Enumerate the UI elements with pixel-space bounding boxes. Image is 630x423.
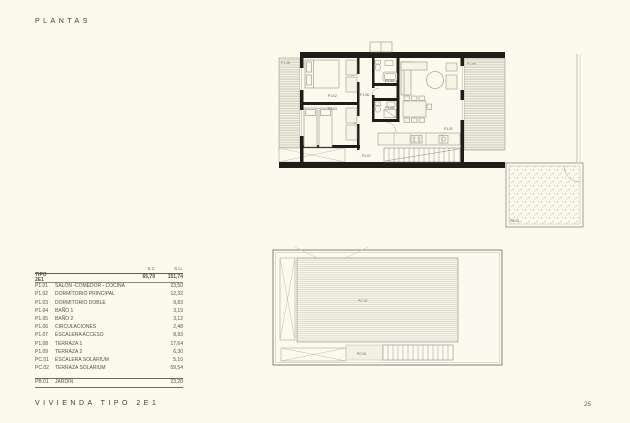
label-bano2: P1.05	[385, 106, 394, 110]
access-stair	[384, 148, 460, 162]
row-su: 59,54	[155, 366, 183, 371]
row-su: 23,50	[155, 284, 183, 289]
round-table	[427, 72, 444, 89]
row-label: JARDÍN	[55, 380, 129, 385]
row-su: 2,48	[155, 325, 183, 330]
row-code: P1.07	[35, 333, 55, 338]
row-label: DORMITORIO PRINCIPAL	[55, 292, 129, 297]
row-code: P1.01	[35, 284, 55, 289]
footer-title: VIVIENDA TIPO 2E1	[35, 400, 159, 407]
row-code: P1.05	[35, 317, 55, 322]
label-terraza-right: P1.09	[467, 62, 476, 66]
plot-boundary-line	[577, 54, 580, 162]
solarium-stair	[383, 345, 453, 360]
row-code: P1.04	[35, 309, 55, 314]
row-su: 6,30	[155, 350, 183, 355]
table-row: P1.06 CIRCULACIONES 2,48	[35, 324, 183, 332]
chimney	[370, 42, 392, 52]
label-dormitorio-doble: P1.03	[328, 107, 337, 111]
garden-area	[506, 163, 583, 227]
row-su: 12,32	[155, 292, 183, 297]
label-bano1: P1.04	[385, 79, 394, 83]
row-su: 8,93	[155, 333, 183, 338]
row-code: PC.01	[35, 358, 55, 363]
label-salon: P1.01	[444, 127, 453, 131]
row-code: P1.06	[35, 325, 55, 330]
crossed-terrace-box	[279, 148, 345, 162]
row-su: 17,64	[155, 342, 183, 347]
label-jardin: PB.01	[510, 219, 519, 223]
table-row: PC.02 TERRAZA SOLARIUM 59,54	[35, 365, 183, 373]
row-su: 5,10	[155, 358, 183, 363]
row-label: BAÑO 2	[55, 317, 129, 322]
row-su: 151,74	[155, 275, 183, 280]
table-row: P1.03 DORMITORIO DOBLE 9,83	[35, 299, 183, 307]
table-row: P1.09 TERRAZA 2 6,30	[35, 348, 183, 356]
table-row: P1.08 TERRAZA 1 17,64	[35, 340, 183, 348]
solarium-deck	[297, 258, 458, 342]
terrace-right	[464, 58, 505, 150]
row-label: SALÓN -COMEDOR - COCINA	[55, 284, 129, 289]
row-label: CIRCULACIONES	[55, 325, 129, 330]
table-row: P1.04 BAÑO 1 3,19	[35, 307, 183, 315]
divider	[35, 387, 183, 388]
row-label: ESCALERA SOLARIUM	[55, 358, 129, 363]
terrace-left	[279, 58, 300, 150]
col-header-sc: S.C	[129, 267, 155, 272]
page-title: PLANTAS	[35, 18, 91, 25]
table-row: PC.01 ESCALERA SOLARIUM 5,10	[35, 356, 183, 364]
row-su: 9,83	[155, 301, 183, 306]
table-row: P1.02 DORMITORIO PRINCIPAL 12,32	[35, 291, 183, 299]
row-label: DORMITORIO DOBLE	[55, 301, 129, 306]
label-escalera-solarium: PC.01	[357, 352, 367, 356]
label-terraza-left: P1.08	[281, 61, 290, 65]
label-escalera: P1.07	[362, 154, 371, 158]
row-su: 23,20	[155, 380, 183, 385]
table-row-garden: PB.01 JARDÍN 23,20	[35, 379, 183, 387]
row-label: BAÑO 1	[55, 309, 129, 314]
skylight-box-left	[280, 258, 295, 340]
label-dormitorio-principal: P1.02	[328, 94, 337, 98]
row-label: ESCALERA ACCESO	[55, 333, 129, 338]
row-label: TERRAZA SOLARIUM	[55, 366, 129, 371]
shelving	[446, 63, 457, 89]
table-row-tipo: TIPO 2E1 65,79 151,74	[35, 273, 183, 283]
bed-double	[305, 60, 339, 88]
lower-floor-plan: PC.02 PC.01	[265, 245, 510, 370]
label-circulaciones: P1.06	[360, 93, 369, 97]
area-table: S.C S.U. TIPO 2E1 65,79 151,74 P1.01 SAL…	[35, 266, 183, 388]
page-number: 25	[584, 401, 591, 408]
row-label: TERRAZA 2	[55, 350, 129, 355]
table-row: P1.01 SALÓN -COMEDOR - COCINA 23,50	[35, 283, 183, 291]
kitchen-counter	[378, 133, 460, 145]
row-label: TERRAZA 1	[55, 342, 129, 347]
col-header-su: S.U.	[155, 267, 183, 272]
row-code: PC.02	[35, 366, 55, 371]
row-code: P1.02	[35, 292, 55, 297]
row-su: 3,12	[155, 317, 183, 322]
upper-floor-plan: P1.08 P1.09 P1.02 P1.03 P1.04 P1.06 P1.0…	[276, 40, 588, 230]
row-code: PB.01	[35, 380, 55, 385]
table-row: P1.05 BAÑO 2 3,12	[35, 315, 183, 323]
row-sc: 65,79	[129, 275, 155, 280]
table-row: P1.07 ESCALERA ACCESO 8,93	[35, 332, 183, 340]
label-terraza-solarium: PC.02	[358, 299, 368, 303]
row-code: P1.08	[35, 342, 55, 347]
row-code: TIPO 2E1	[35, 273, 55, 283]
row-su: 3,19	[155, 309, 183, 314]
row-code: P1.03	[35, 301, 55, 306]
skylight-box-bottom	[281, 348, 346, 361]
row-code: P1.09	[35, 350, 55, 355]
